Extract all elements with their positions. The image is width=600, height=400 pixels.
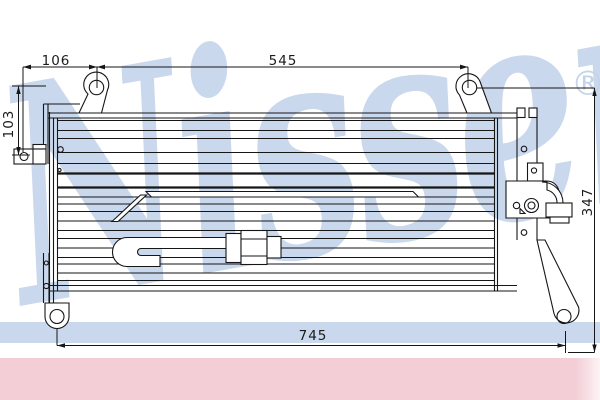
inlet-pipe-fitting <box>112 231 281 267</box>
catalog-image: Nissens ® <box>0 0 600 400</box>
outlet-fitting-block <box>506 163 572 223</box>
dimension-label-top-center: 545 <box>267 53 299 69</box>
dimension-label-left-side: 103 <box>1 104 17 144</box>
dimension-label-top-left: 106 <box>40 53 72 69</box>
dimension-label-bottom: 745 <box>297 328 329 344</box>
mounting-bracket-bottom-right <box>537 240 579 324</box>
mounting-bracket-top-left <box>79 72 109 113</box>
dimension-label-right-side: 347 <box>580 182 596 222</box>
receiver-line <box>112 192 419 222</box>
top-rail <box>48 113 517 118</box>
bottom-rail <box>50 286 518 292</box>
mounting-bracket-top-right <box>456 74 492 113</box>
